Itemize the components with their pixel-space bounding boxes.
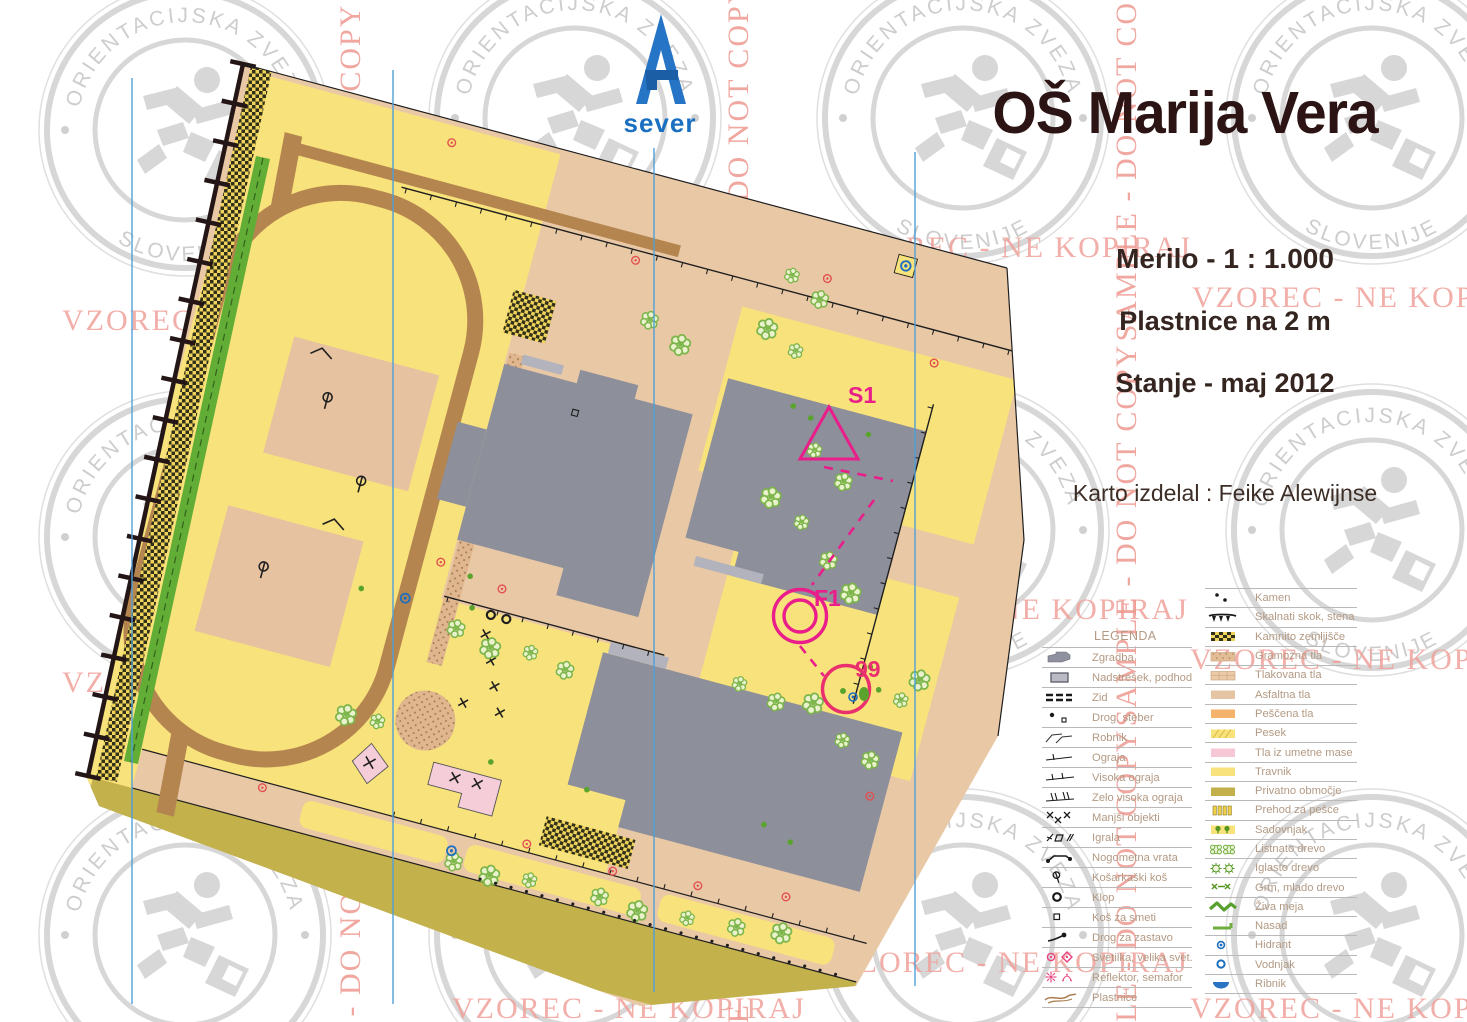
pole-icon bbox=[1042, 710, 1092, 725]
legend-row: Tlakovana tla bbox=[1205, 666, 1357, 685]
paved-icon bbox=[1205, 668, 1255, 683]
legend-label: Tlakovana tla bbox=[1255, 669, 1322, 681]
building-icon bbox=[1042, 650, 1092, 665]
fence-icon bbox=[1042, 750, 1092, 765]
contour-interval: Plastnice na 2 m bbox=[1030, 306, 1420, 337]
small-objects-icon bbox=[1042, 810, 1092, 825]
meadow-icon bbox=[1205, 764, 1255, 779]
sandy-ground-icon bbox=[1205, 706, 1255, 721]
sand-icon bbox=[1205, 726, 1255, 741]
club-name: sever bbox=[600, 108, 720, 139]
legend-label: Skalnati skok, stena bbox=[1255, 611, 1355, 623]
cartographer-credit: Karto izdelal : Feike Alewijnse bbox=[1030, 480, 1420, 507]
legend-row: Zgradba bbox=[1042, 648, 1192, 668]
legend-label: Svetilka, velika svet. bbox=[1092, 952, 1193, 964]
legend-row: Ribnik bbox=[1205, 975, 1357, 994]
legend-row: Grm, mlado drevo bbox=[1205, 878, 1357, 897]
legend-row: Robnik bbox=[1042, 728, 1192, 748]
legend-label: Tla iz umetne mase bbox=[1255, 747, 1353, 759]
stony-ground-icon bbox=[1205, 629, 1255, 644]
legend-label: Kamnito zemljišče bbox=[1255, 631, 1345, 643]
legend-label: Asfaltna tla bbox=[1255, 689, 1310, 701]
legend-label: Klop bbox=[1092, 892, 1114, 904]
canopy-icon bbox=[1042, 670, 1092, 685]
legend-label: Ograja bbox=[1092, 752, 1126, 764]
trash-bin-icon bbox=[1042, 910, 1092, 925]
legend-row: Sadovnjak bbox=[1205, 821, 1357, 840]
basketball-hoop-icon bbox=[1042, 870, 1092, 885]
legend-label: Travnik bbox=[1255, 766, 1291, 778]
legend-row: Plastnice bbox=[1042, 988, 1192, 1008]
lamp-icon bbox=[1042, 950, 1092, 965]
legend-row: Koš za smeti bbox=[1042, 908, 1192, 928]
legend-label: Koš za smeti bbox=[1092, 912, 1156, 924]
flagpole-icon bbox=[1042, 930, 1092, 945]
bush-icon bbox=[1205, 880, 1255, 895]
club-logo-icon bbox=[600, 12, 720, 108]
legend-column-right: KamenSkalnati skok, stenaKamnito zemljiš… bbox=[1205, 588, 1357, 994]
legend-label: Listnato drevo bbox=[1255, 843, 1325, 855]
legend-row: Drog, steber bbox=[1042, 708, 1192, 728]
legend-row: Drog za zastavo bbox=[1042, 928, 1192, 948]
legend-row: Nasad bbox=[1205, 917, 1357, 936]
legend-row: Ograja bbox=[1042, 748, 1192, 768]
legend-label: Privatno območje bbox=[1255, 785, 1341, 797]
legend-row: Svetilka, velika svet. bbox=[1042, 948, 1192, 968]
legend-label: Plastnice bbox=[1092, 992, 1137, 1004]
legend-label: Nasad bbox=[1255, 920, 1287, 932]
legend-label: Drog, steber bbox=[1092, 712, 1154, 724]
gravel-icon bbox=[1205, 649, 1255, 664]
legend-label: Pesek bbox=[1255, 727, 1286, 739]
legend-row: Privatno območje bbox=[1205, 782, 1357, 801]
orchard-icon bbox=[1205, 822, 1255, 837]
floodlight-icon bbox=[1042, 970, 1092, 985]
legend-row: Prehod za pešce bbox=[1205, 801, 1357, 820]
hydrant-icon bbox=[1205, 938, 1255, 953]
legend-label: Zelo visoka ograja bbox=[1092, 792, 1183, 804]
legend-row: Igrala bbox=[1042, 828, 1192, 848]
legend-row: Peščena tla bbox=[1205, 705, 1357, 724]
legend-row: Gramozna tla bbox=[1205, 647, 1357, 666]
high-fence-icon bbox=[1042, 770, 1092, 785]
pond-icon bbox=[1205, 977, 1255, 992]
legend-label: Drog za zastavo bbox=[1092, 932, 1173, 944]
coniferous-tree-icon bbox=[1205, 861, 1255, 876]
legend-label: Vodnjak bbox=[1255, 959, 1295, 971]
playground-icon bbox=[1042, 830, 1092, 845]
legend-row: Hidrant bbox=[1205, 936, 1357, 955]
legend-label: Živa meja bbox=[1255, 901, 1304, 913]
legend-row: Košarkaški koš bbox=[1042, 868, 1192, 888]
legend-row: Manjši objekti bbox=[1042, 808, 1192, 828]
legend-label: Gramozna tla bbox=[1255, 650, 1322, 662]
map-status-date: Stanje - maj 2012 bbox=[1030, 368, 1420, 399]
legend-row: Tla iz umetne mase bbox=[1205, 743, 1357, 762]
club-logo: sever bbox=[600, 12, 720, 139]
control-label: 99 bbox=[855, 656, 881, 682]
legend-column-left: LEGENDA ZgradbaNadstrešek, podhodZidDrog… bbox=[1042, 626, 1192, 1008]
legend-row: Klop bbox=[1042, 888, 1192, 908]
legend-label: Visoka ograja bbox=[1092, 772, 1160, 784]
legend-row: Pesek bbox=[1205, 724, 1357, 743]
page: ORIENTACIJSKA ZVEZA SLOVENIJE VZOREC - N… bbox=[0, 0, 1467, 1022]
legend-row: Kamen bbox=[1205, 589, 1357, 608]
legend-label: Zid bbox=[1092, 692, 1108, 704]
hedge-icon bbox=[1205, 899, 1255, 914]
legend-label: Grm, mlado drevo bbox=[1255, 882, 1345, 894]
legend-row: Asfaltna tla bbox=[1205, 685, 1357, 704]
stone-icon bbox=[1205, 591, 1255, 606]
legend-row: Nadstrešek, podhod bbox=[1042, 668, 1192, 688]
very-high-fence-icon bbox=[1042, 790, 1092, 805]
legend-row: Zid bbox=[1042, 688, 1192, 708]
bench-icon bbox=[1042, 890, 1092, 905]
map-title: OŠ Marija Vera bbox=[975, 79, 1395, 148]
legend-row: Nogometna vrata bbox=[1042, 848, 1192, 868]
wall-icon bbox=[1042, 690, 1092, 705]
legend-label: Zgradba bbox=[1092, 652, 1134, 664]
plantation-icon bbox=[1205, 919, 1255, 934]
legend-label: Kamen bbox=[1255, 592, 1290, 604]
map-scale: Merilo - 1 : 1.000 bbox=[1030, 243, 1420, 275]
curb-icon bbox=[1042, 730, 1092, 745]
legend-label: Peščena tla bbox=[1255, 708, 1313, 720]
legend-label: Hidrant bbox=[1255, 939, 1291, 951]
asphalt-icon bbox=[1205, 687, 1255, 702]
legend-label: Reflektor, semafor bbox=[1092, 972, 1183, 984]
deciduous-tree-icon bbox=[1205, 842, 1255, 857]
legend-label: Košarkaški koš bbox=[1092, 872, 1167, 884]
legend-row: Reflektor, semafor bbox=[1042, 968, 1192, 988]
legend-label: Iglasto drevo bbox=[1255, 862, 1319, 874]
legend-row: Zelo visoka ograja bbox=[1042, 788, 1192, 808]
cliff-icon bbox=[1205, 610, 1255, 625]
start-label: S1 bbox=[848, 382, 876, 408]
crossing-icon bbox=[1205, 803, 1255, 818]
legend-row: Travnik bbox=[1205, 763, 1357, 782]
well-icon bbox=[1205, 957, 1255, 972]
legend-row: Kamnito zemljišče bbox=[1205, 628, 1357, 647]
legend-label: Sadovnjak bbox=[1255, 824, 1307, 836]
legend-label: Igrala bbox=[1092, 832, 1120, 844]
legend-heading: LEGENDA bbox=[1042, 626, 1192, 648]
private-area-icon bbox=[1205, 784, 1255, 799]
legend-row: Listnato drevo bbox=[1205, 840, 1357, 859]
legend-label: Nadstrešek, podhod bbox=[1092, 672, 1192, 684]
legend-row: Skalnati skok, stena bbox=[1205, 608, 1357, 627]
contours-icon bbox=[1042, 990, 1092, 1005]
map-site bbox=[53, 40, 1050, 1022]
legend-label: Nogometna vrata bbox=[1092, 852, 1178, 864]
legend-label: Manjši objekti bbox=[1092, 812, 1160, 824]
football-goal-icon bbox=[1042, 850, 1092, 865]
legend-row: Iglasto drevo bbox=[1205, 859, 1357, 878]
synthetic-icon bbox=[1205, 745, 1255, 760]
legend-row: Vodnjak bbox=[1205, 956, 1357, 975]
legend-label: Prehod za pešce bbox=[1255, 804, 1339, 816]
legend-label: Ribnik bbox=[1255, 978, 1286, 990]
legend-row: Živa meja bbox=[1205, 898, 1357, 917]
legend-row: Visoka ograja bbox=[1042, 768, 1192, 788]
finish-label: F1 bbox=[814, 585, 841, 611]
legend-label: Robnik bbox=[1092, 732, 1127, 744]
